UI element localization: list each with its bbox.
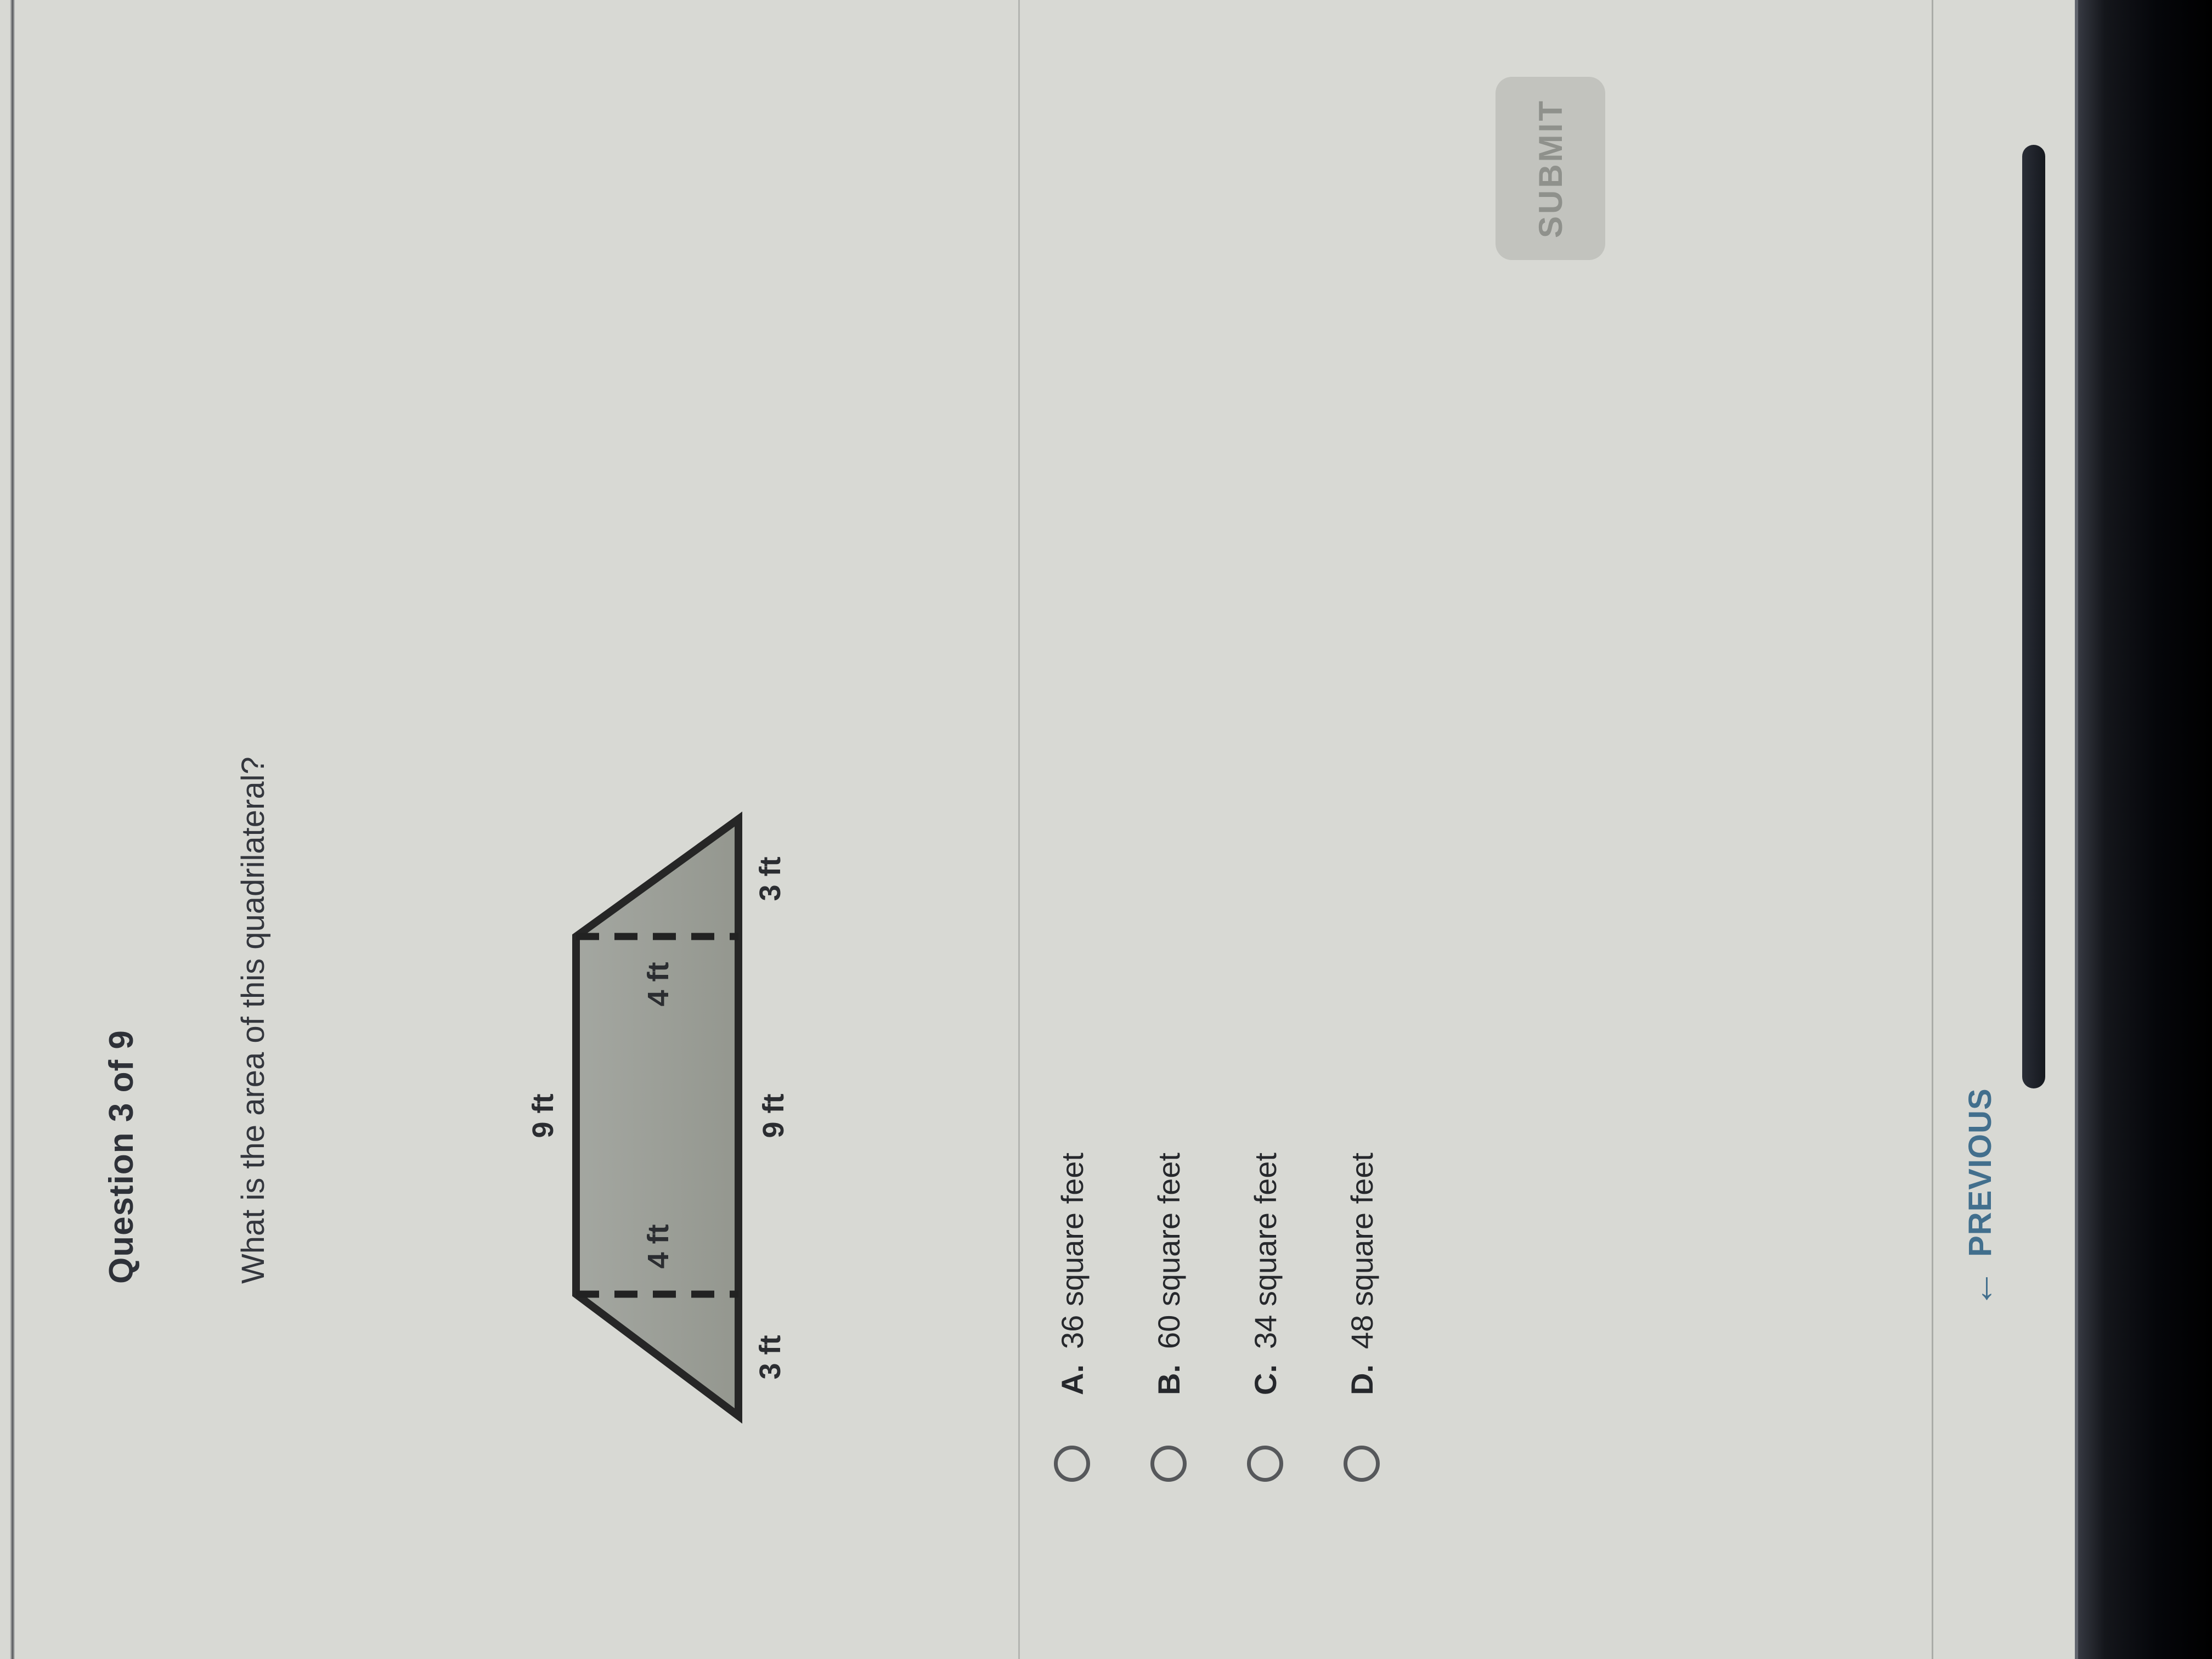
quadrilateral-figure: 9 ft 4 ft 4 ft 3 ft 9 ft 3 ft — [524, 781, 832, 1440]
right-height-label: 4 ft — [642, 962, 675, 1006]
option-text: 36 square feet — [1054, 1153, 1090, 1349]
left-height-label: 4 ft — [642, 1224, 675, 1268]
option-text: 34 square feet — [1248, 1153, 1283, 1349]
answer-section-divider — [1018, 0, 1020, 1659]
bezel-glint — [2075, 0, 2078, 1659]
quiz-page: Question 3 of 9 What is the area of this… — [14, 0, 2089, 1659]
question-text: What is the area of this quadrilateral? — [235, 757, 272, 1284]
trapezoid-svg: 9 ft 4 ft 4 ft 3 ft 9 ft 3 ft — [524, 781, 832, 1440]
option-text: 48 square feet — [1344, 1153, 1380, 1349]
radio-button[interactable] — [1344, 1446, 1380, 1482]
answer-option-row[interactable]: B. 60 square feet — [1152, 0, 1185, 1659]
submit-button[interactable]: SUBMIT — [1496, 77, 1605, 260]
bottom-right-label: 3 ft — [754, 856, 787, 901]
previous-button[interactable]: ← PREVIOUS — [1961, 1088, 1999, 1308]
option-text: 60 square feet — [1151, 1153, 1187, 1349]
previous-label: PREVIOUS — [1962, 1088, 1999, 1257]
home-indicator-bar[interactable] — [2022, 145, 2045, 1088]
trapezoid-shape — [576, 819, 738, 1416]
bottom-left-label: 3 ft — [754, 1335, 787, 1379]
footer-divider — [1932, 0, 1933, 1659]
radio-button[interactable] — [1247, 1446, 1283, 1482]
question-counter: Question 3 of 9 — [102, 1030, 141, 1284]
device-bezel — [2075, 0, 2212, 1659]
answer-option-row[interactable]: C. 34 square feet — [1249, 0, 1282, 1659]
answer-option-row[interactable]: A. 36 square feet — [1056, 0, 1088, 1659]
answer-option-row[interactable]: D. 48 square feet — [1345, 0, 1378, 1659]
left-arrow-icon: ← — [1961, 1269, 1999, 1308]
radio-button[interactable] — [1150, 1446, 1187, 1482]
bottom-middle-label: 9 ft — [757, 1093, 790, 1138]
top-edge-label: 9 ft — [527, 1093, 560, 1138]
option-letter: B. — [1151, 1364, 1187, 1395]
option-letter: A. — [1054, 1364, 1090, 1395]
tablet-screen: Question 3 of 9 What is the area of this… — [14, 0, 2089, 1659]
answer-options: A. 36 square feet B. 60 square feet C. 3… — [1056, 0, 1378, 1659]
radio-button[interactable] — [1054, 1446, 1090, 1482]
option-letter: D. — [1344, 1364, 1380, 1395]
option-letter: C. — [1248, 1364, 1283, 1395]
